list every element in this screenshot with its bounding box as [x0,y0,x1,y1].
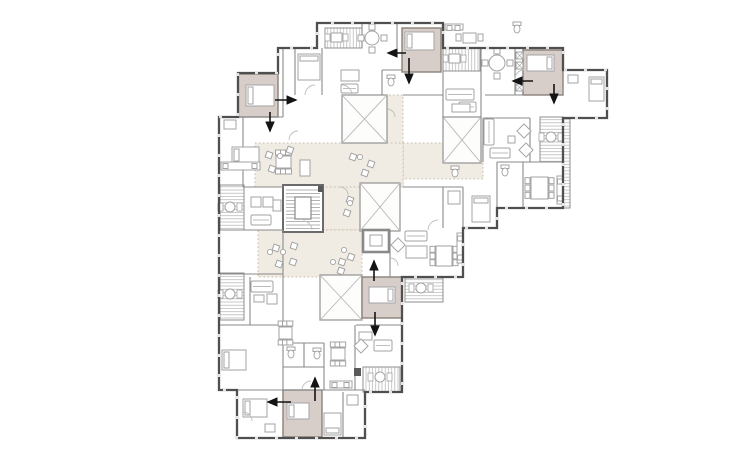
toilet [388,78,394,86]
table [406,246,427,258]
bed-pillow [326,428,339,433]
bed-pillow [388,289,393,301]
balcony-table [449,54,460,63]
courtyard-chair [361,169,369,177]
dining-chair [525,178,530,184]
floor-plan-page [0,0,736,459]
chair [381,35,387,41]
table [341,70,359,81]
courtyard-table [341,247,346,252]
balcony-chair [387,373,392,381]
entry-vestibule-box [363,230,389,252]
wall-block [318,186,323,192]
dining-table [531,177,548,199]
table [448,191,460,204]
table [452,104,470,112]
bed-pillow [547,57,552,69]
courtyard-chair [289,258,297,266]
toilet [314,351,320,359]
courtyard-table [357,154,362,159]
table [265,424,275,432]
table [568,75,578,83]
courtyard-chair [349,153,357,161]
balcony-chair [343,34,348,41]
dining-table [331,348,345,360]
table [508,136,515,143]
stair-core [283,185,323,232]
stair-landing [295,197,311,219]
bed-pillow [248,87,253,104]
dining-chair [430,253,435,259]
courtyard-table [267,249,272,254]
courtyard-chair [290,242,298,250]
bed-pillow [407,34,412,48]
dining-chair [430,246,435,252]
chair [358,35,364,41]
dining-chair [549,192,554,198]
chair [456,34,461,41]
courtyard-chair [367,160,375,168]
table [224,120,236,129]
balcony-chair [443,55,448,62]
dining-chair [525,192,530,198]
courtyard-chair [272,244,280,252]
toilet [514,25,520,33]
table [463,33,476,43]
courtyard-chair [347,253,355,261]
bed-pillow [474,198,488,203]
round-table [365,31,379,45]
bed-pillow [300,56,318,61]
balcony-chair [409,284,414,292]
courtyard-area [258,230,362,277]
balcony-table [331,33,342,42]
courtyard-chair [338,258,346,266]
table [273,200,281,211]
balcony-chair [325,34,330,41]
dining-chair [549,185,554,191]
dining-chair [287,321,293,326]
chair [478,34,483,41]
courtyard-area [322,187,362,230]
dining-chair [286,169,292,174]
courtyard-chair [268,165,276,173]
balcony-chair [461,55,466,62]
balcony-chair [539,133,544,141]
armchair [267,294,277,304]
wall-block [354,368,361,376]
balcony-table [225,202,235,212]
chair [482,60,488,66]
balcony-chair [428,284,433,292]
courtyard-chair [343,209,351,217]
courtyard-table [277,153,282,158]
chair [507,60,513,66]
balcony-table [375,372,385,382]
chair [369,47,375,53]
courtyard-table [347,200,352,205]
balcony-chair [237,290,242,298]
dining-chair [287,340,293,345]
toilet [452,169,458,177]
courtyard-chair [265,151,273,159]
chair [369,24,375,30]
bed-pillow [234,149,239,161]
chair [494,73,500,79]
courtyard-chair [337,267,345,275]
entry-vestibule [363,230,389,252]
courtyard-table [280,249,285,254]
armchair [251,197,261,207]
courtyard-chair [275,260,283,268]
balcony-chair [368,373,373,381]
balcony-chair [237,203,242,211]
bed-pillow [289,405,294,417]
balcony-table [416,283,426,293]
dining-chair [340,342,346,347]
courtyard-chair [286,146,294,154]
bed-pillow [224,352,229,368]
dining-table [279,327,292,339]
bed-pillow [591,79,602,84]
table [300,160,310,176]
dining-chair [549,178,554,184]
balcony-table [225,289,235,299]
table [254,295,264,302]
armchair [263,197,273,207]
dining-chair [525,185,530,191]
floor-plan-drawing [0,0,736,459]
dining-chair [340,361,346,366]
dining-table [436,246,452,266]
balcony-table [546,132,556,142]
dining-chair [430,260,435,266]
courtyard-table [330,259,335,264]
round-table [489,55,505,71]
table [347,395,358,405]
toilet [502,168,508,176]
toilet [288,350,294,358]
